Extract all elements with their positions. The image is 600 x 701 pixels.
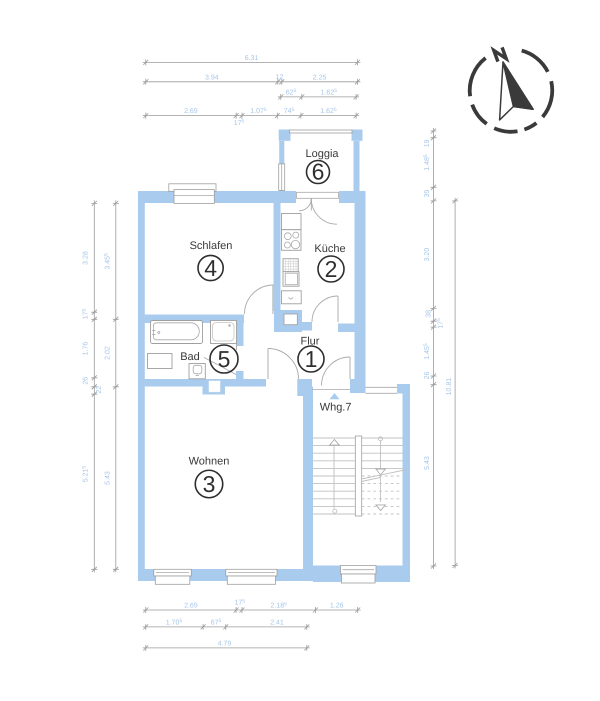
svg-text:4.79: 4.79 — [218, 640, 232, 647]
svg-text:2.25: 2.25 — [313, 74, 327, 81]
svg-text:2: 2 — [325, 256, 338, 282]
svg-text:12: 12 — [276, 74, 284, 81]
svg-text:1.76: 1.76 — [83, 342, 90, 356]
svg-text:2.41: 2.41 — [270, 619, 284, 626]
svg-text:1: 1 — [305, 346, 318, 372]
svg-text:10.81: 10.81 — [446, 378, 453, 396]
svg-text:3.20: 3.20 — [424, 248, 431, 262]
svg-text:Schlafen: Schlafen — [190, 240, 233, 252]
svg-text:4: 4 — [204, 255, 217, 281]
svg-text:6.31: 6.31 — [245, 55, 259, 62]
svg-text:Bad: Bad — [180, 351, 200, 363]
svg-text:19: 19 — [424, 139, 431, 147]
svg-text:6: 6 — [312, 158, 325, 184]
svg-text:3: 3 — [203, 471, 216, 497]
svg-text:26: 26 — [83, 377, 90, 385]
svg-text:22: 22 — [96, 386, 103, 394]
svg-text:39: 39 — [424, 190, 431, 198]
svg-text:26: 26 — [424, 372, 431, 380]
svg-text:5.43: 5.43 — [424, 456, 431, 470]
svg-text:Wohnen: Wohnen — [189, 456, 230, 468]
svg-text:2.02: 2.02 — [105, 346, 112, 360]
svg-text:38: 38 — [426, 310, 433, 318]
svg-text:3.94: 3.94 — [205, 74, 219, 81]
svg-text:Whg.7: Whg.7 — [320, 402, 352, 414]
svg-text:1.26: 1.26 — [330, 603, 344, 610]
svg-text:5: 5 — [218, 346, 231, 372]
svg-text:2.69: 2.69 — [184, 603, 198, 610]
svg-text:2.69: 2.69 — [184, 108, 198, 115]
svg-text:Küche: Küche — [314, 243, 345, 255]
svg-text:3.28: 3.28 — [83, 251, 90, 265]
svg-text:5.43: 5.43 — [105, 471, 112, 485]
